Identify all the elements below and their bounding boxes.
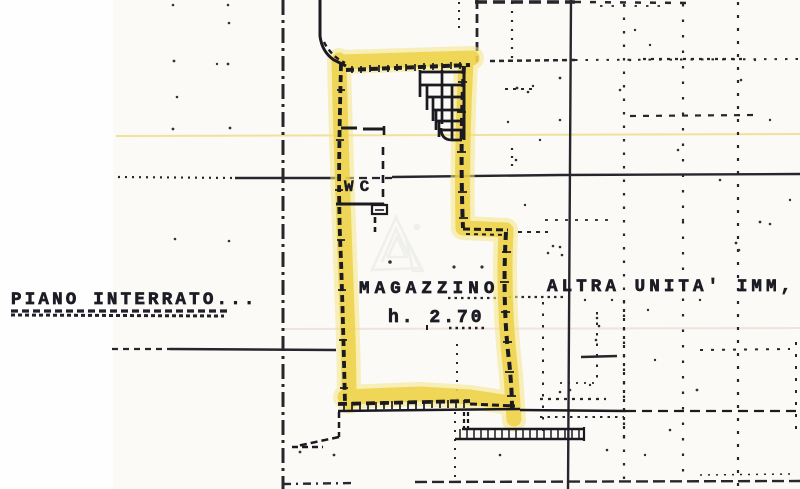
svg-text:PIANO INTERRATO...: PIANO INTERRATO... bbox=[11, 290, 258, 310]
svg-text:ALTRA UNITA' IMM,: ALTRA UNITA' IMM, bbox=[547, 277, 795, 297]
svg-text:h. 2.70: h. 2.70 bbox=[388, 308, 485, 328]
svg-text:MAGAZZINO: MAGAZZINO bbox=[359, 279, 499, 299]
svg-text:WC: WC bbox=[344, 178, 375, 196]
